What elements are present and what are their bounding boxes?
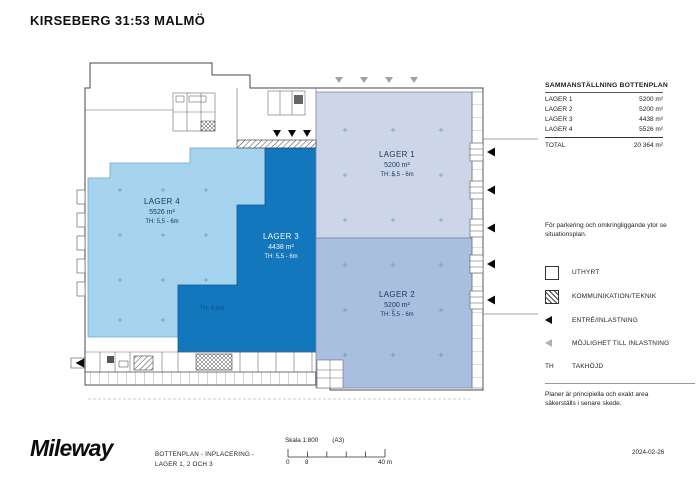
lager-3-label: LAGER 3 4438 m² TH: 5,5 - 6m [263,233,299,260]
lager-1-name: LAGER 1 [379,151,415,159]
th-symbol: TH [545,363,554,370]
row-value: 5526 m² [639,126,663,133]
entre-arrow-icon [545,316,552,324]
paper-size: (A3) [332,437,344,444]
legend-label: KOMMUNIKATION/TEKNIK [572,293,656,300]
drawing-title: BOTTENPLAN - INPLACERING - LAGER 1, 2 OC… [155,450,254,470]
lager-2-label: LAGER 2 5200 m² TH: 5,5 - 6m [379,291,415,318]
lager-4-name: LAGER 4 [144,198,180,206]
legend-label: MÖJLIGHET TILL INLASTNING [572,340,669,347]
lager2-core [317,360,343,388]
entre-icon-wrap [545,316,560,324]
total-row: TOTAL 20 364 m² [545,142,663,149]
row-label: LAGER 1 [545,96,572,103]
kommunikation-swatch-wrap [545,290,560,304]
scale-text: Skala 1:800(A3) [285,437,405,444]
row-value: 5200 m² [639,106,663,113]
th-symbol-wrap: TH [545,363,560,370]
row-value: 5200 m² [639,96,663,103]
lager-2-name: LAGER 2 [379,291,415,299]
legend-label: UTHYRT [572,269,599,276]
table-row: LAGER 3 4438 m² [545,116,663,123]
hatch-swatch-icon [545,290,559,304]
summary-table: LAGER 1 5200 m² LAGER 2 5200 m² LAGER 3 … [545,96,663,149]
lager-4-area-value: 5526 m² [144,209,180,216]
drawing-title-line2: LAGER 1, 2 OCH 3 [155,460,254,470]
legend-label: ENTRÉ/INLASTNING [572,317,638,324]
stair-block [201,121,215,131]
scale-bar [285,446,405,460]
lager-4-height: TH: 5,5 - 6m [144,219,180,225]
lager-1-height: TH: 5,5 - 6m [379,172,415,178]
scale-label: Skala 1:800 [285,437,318,444]
row-label: LAGER 2 [545,106,572,113]
row-label: LAGER 3 [545,116,572,123]
drawing-sheet: KIRSEBERG 31:53 MALMÖ [0,0,700,490]
mileway-logo: Mileway [30,435,113,462]
total-label: TOTAL [545,142,565,149]
summary-heading: SAMMANSTÄLLNING BOTTENPLAN [545,82,695,89]
lager-1-label: LAGER 1 5200 m² TH: 5,5 - 6m [379,151,415,178]
teknik-block-small [134,356,153,370]
uthyrt-swatch-icon [545,266,559,280]
bottom-cells [85,372,316,385]
strip-dark-detail [107,356,114,363]
legend: UTHYRT KOMMUNIKATION/TEKNIK ENTRÉ/INLAST… [545,266,695,373]
lager-2-area-value: 5200 m² [379,302,415,309]
drawing-title-line1: BOTTENPLAN - INPLACERING - [155,450,254,460]
scale-tick-8: 8 [305,459,309,466]
lager-4-label: LAGER 4 5526 m² TH: 5,5 - 6m [144,198,180,225]
wall-notches [71,190,85,368]
uthyrt-swatch-wrap [545,266,560,280]
dock-strip [472,92,483,388]
scale-block: Skala 1:800(A3) 0 8 40 m [285,437,405,460]
mojlighet-icon-wrap [545,339,560,347]
table-row: LAGER 2 5200 m² [545,106,663,113]
disclaimer-rule [545,383,695,384]
mojlighet-arrow-icons [335,77,418,83]
row-label: LAGER 4 [545,126,572,133]
lager-2-height: TH: 5,5 - 6m [379,312,415,318]
parking-note: För parkering och omkringliggande ytor s… [545,221,670,239]
scale-tick-0: 0 [286,459,290,466]
table-row: LAGER 1 5200 m² [545,96,663,103]
legend-item-entre: ENTRÉ/INLASTNING [545,314,695,327]
legend-item-uthyrt: UTHYRT [545,266,695,280]
legend-label: TAKHÖJD [572,363,603,370]
teknik-block [196,354,232,370]
mojlighet-arrow-icon [545,339,552,347]
total-rule [545,137,663,138]
lager-3-height: TH: 5,5 - 6m [263,254,299,260]
disclaimer-note: Planer är principiella och exakt area sä… [545,390,675,408]
row-value: 4438 m² [639,116,663,123]
lager-1-area-value: 5200 m² [379,162,415,169]
summary-rule [545,92,663,93]
legend-item-mojlighet: MÖJLIGHET TILL INLASTNING [545,337,695,350]
summary-panel: SAMMANSTÄLLNING BOTTENPLAN LAGER 1 5200 … [545,82,695,408]
lager-3-extra-height: TH: 6,5m [200,306,225,312]
drawing-date: 2024-02-26 [632,449,664,456]
scale-tick-40: 40 m [378,459,392,466]
legend-item-kommunikation: KOMMUNIKATION/TEKNIK [545,290,695,304]
shaft-block [294,95,303,104]
teknik-strip [237,140,316,148]
lager-3-area-value: 4438 m² [263,244,299,251]
table-row: LAGER 4 5526 m² [545,126,663,133]
lager-3-name: LAGER 3 [263,233,299,241]
legend-item-takhojd: TH TAKHÖJD [545,360,695,373]
total-value: 20 364 m² [634,142,663,149]
